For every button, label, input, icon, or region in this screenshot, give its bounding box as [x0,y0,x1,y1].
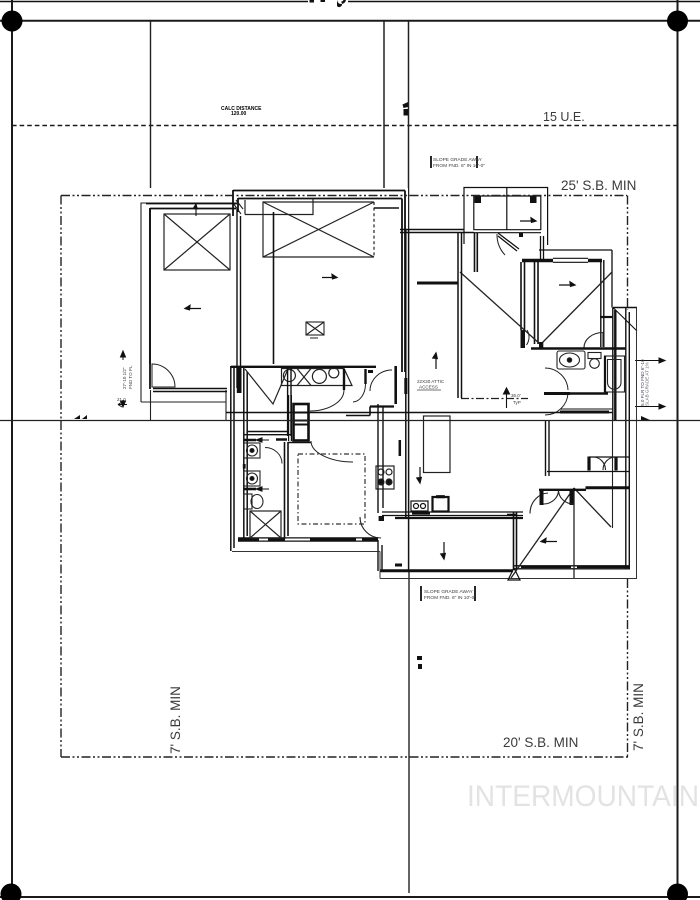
svg-text:7' S.B. MIN: 7' S.B. MIN [631,683,646,751]
svg-text:FROM FND. 6" IN 10'-0": FROM FND. 6" IN 10'-0" [433,163,485,169]
svg-text:FND TO PL: FND TO PL [128,365,133,389]
svg-text:20' S.B. MIN: 20' S.B. MIN [503,735,578,750]
svg-text:SLOPE GRADE AWAY: SLOPE GRADE AWAY [424,589,474,595]
svg-text:22X30 ATTIC: 22X30 ATTIC [417,379,445,384]
svg-text:SLAB GRADE AT 1%: SLAB GRADE AT 1% [645,362,650,406]
svg-text:SLOPE GRADE AWAY: SLOPE GRADE AWAY [433,157,483,163]
svg-text:15 U.E.: 15 U.E. [543,110,585,124]
svg-text:25' S.B. MIN: 25' S.B. MIN [561,178,636,193]
svg-text:27'-10 1/2": 27'-10 1/2" [122,367,127,389]
svg-text:INTERMOUNTAIN: INTERMOUNTAIN [467,780,699,813]
svg-text:7' S.B. MIN: 7' S.B. MIN [168,686,183,754]
svg-text:36.0': 36.0' [511,393,521,398]
svg-text:120.00: 120.00 [231,111,247,117]
svg-text:FROM FND. 6" IN 10'-0": FROM FND. 6" IN 10'-0" [424,595,476,601]
svg-text:ACCESS: ACCESS [419,385,438,390]
svg-text:TyP: TyP [513,400,521,405]
